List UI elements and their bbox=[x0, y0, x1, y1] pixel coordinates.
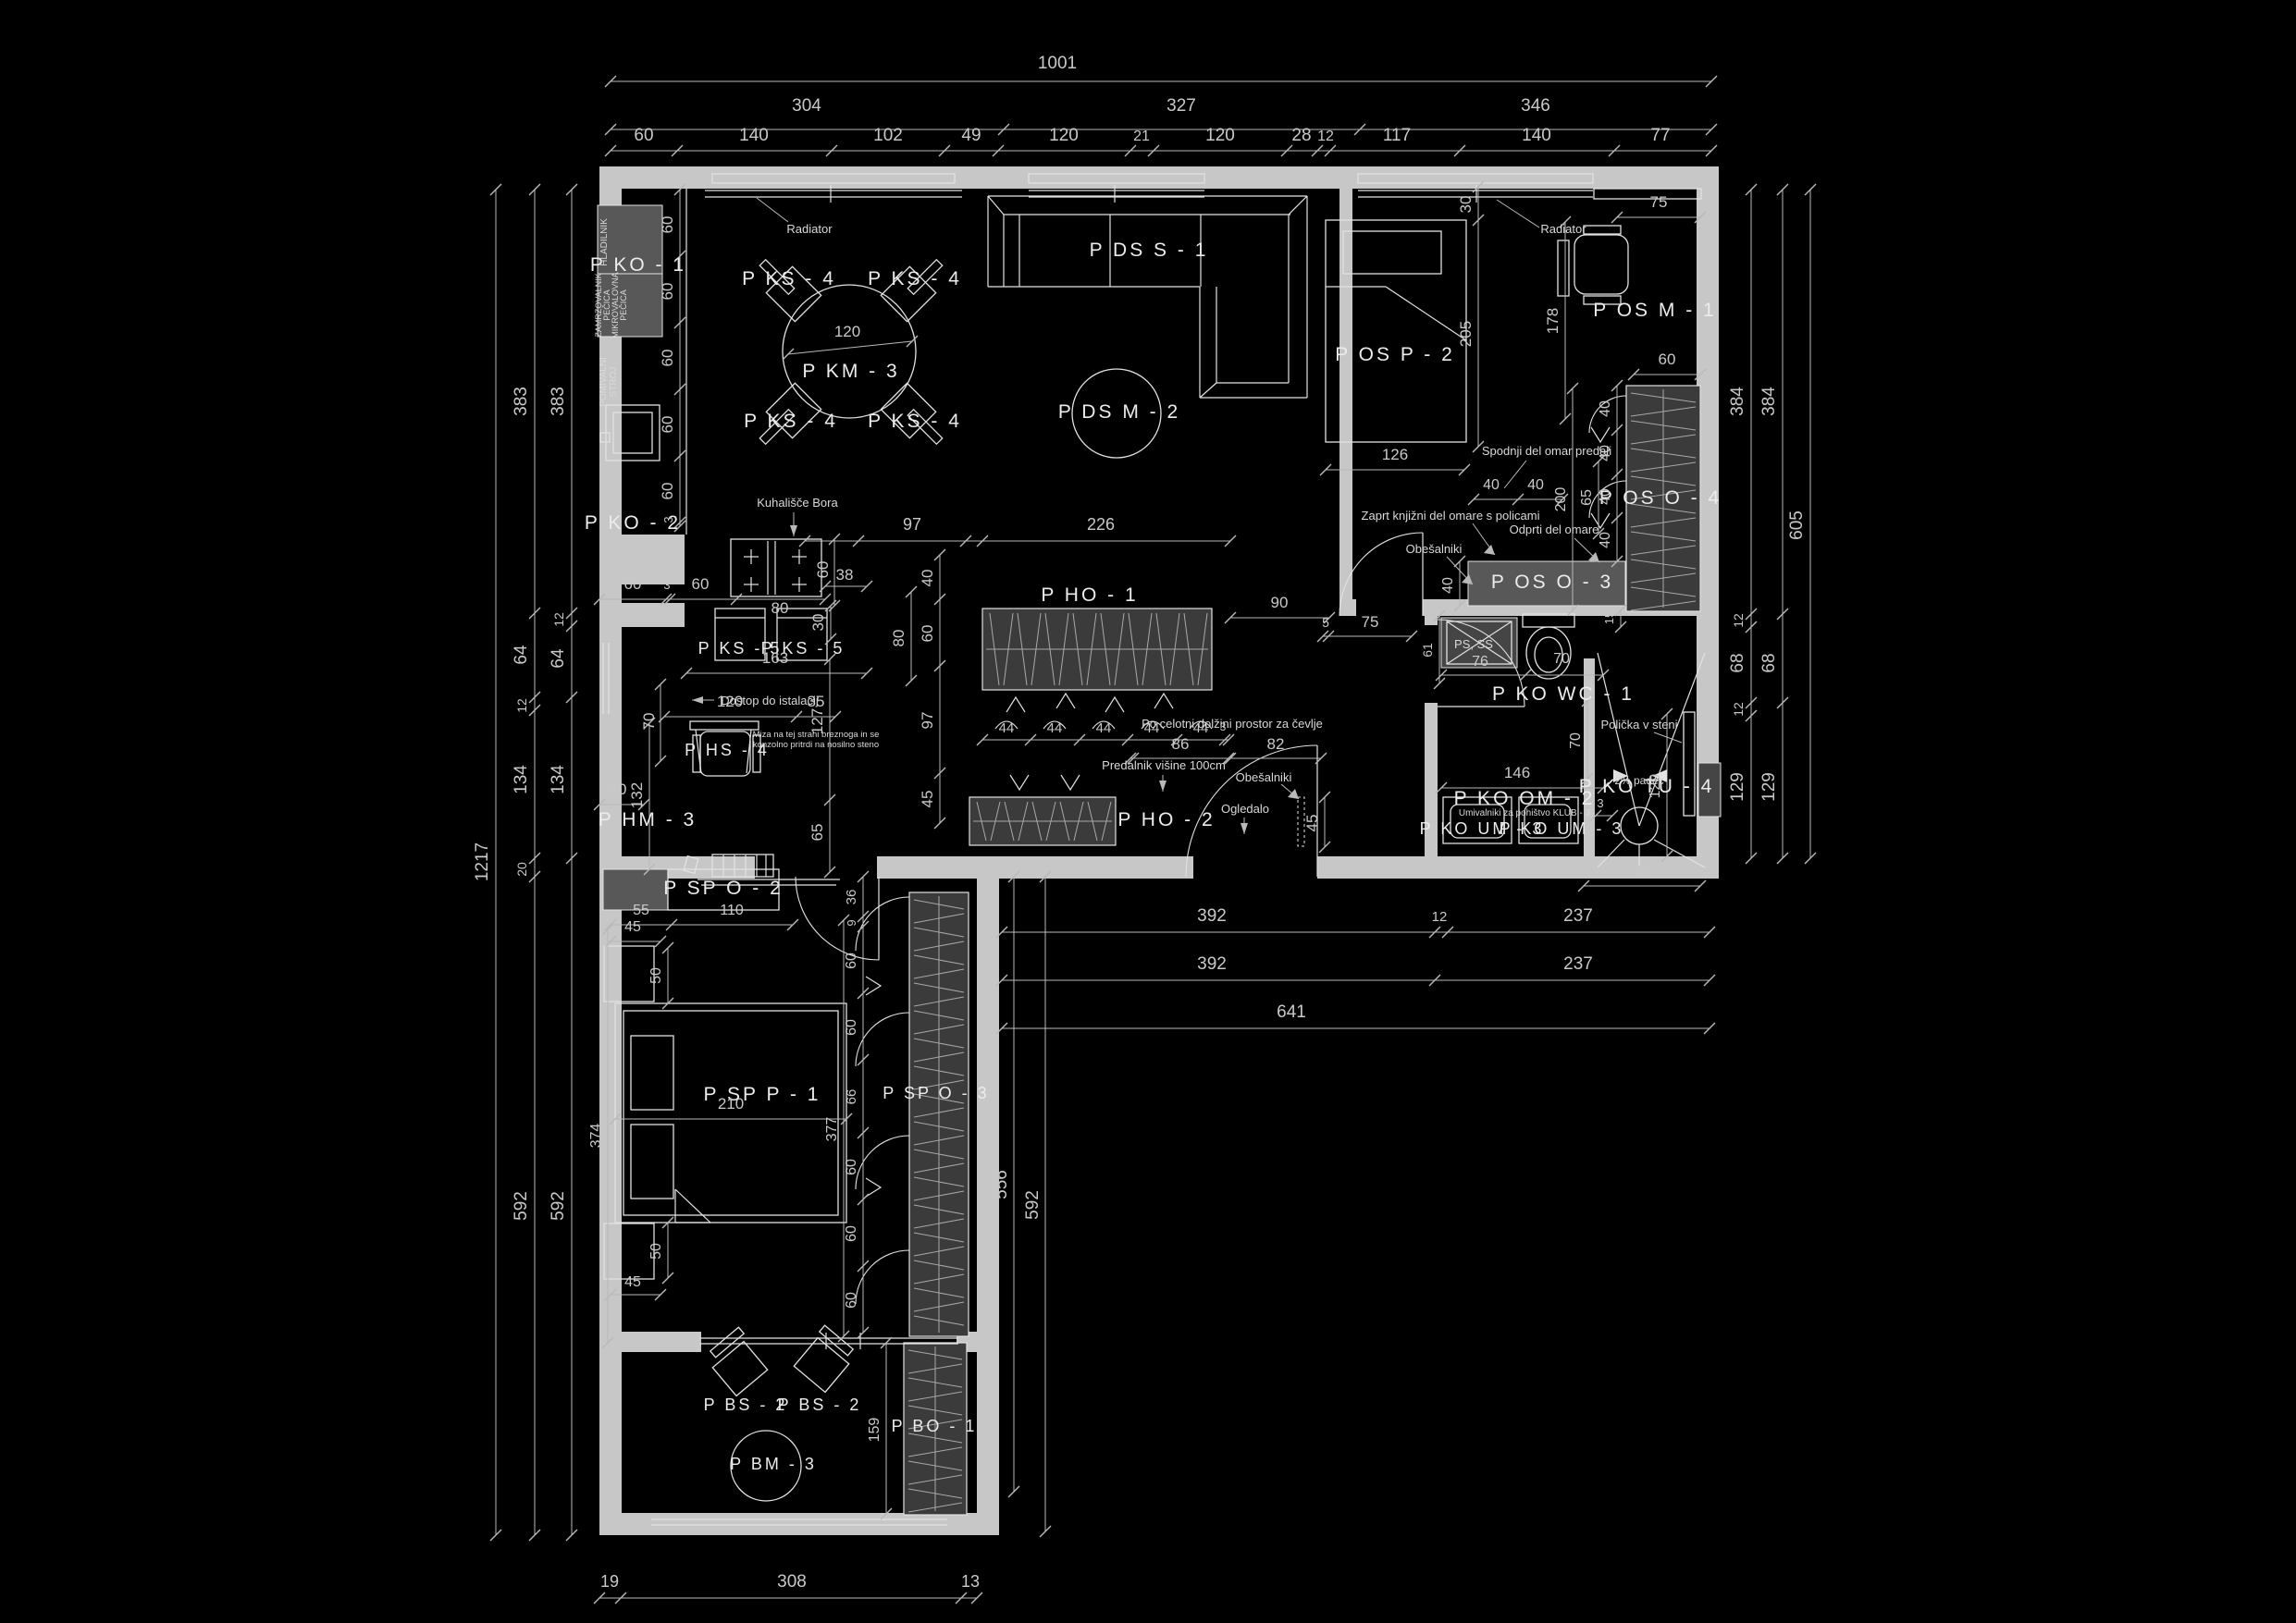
svg-text:140: 140 bbox=[1522, 126, 1551, 145]
svg-text:44: 44 bbox=[1096, 720, 1112, 736]
svg-text:163: 163 bbox=[762, 649, 788, 667]
svg-text:Spodnji del omar predali: Spodnji del omar predali bbox=[1482, 444, 1611, 458]
svg-text:88: 88 bbox=[1636, 865, 1651, 880]
svg-text:641: 641 bbox=[1277, 1002, 1306, 1022]
walls-layer bbox=[599, 166, 1719, 1535]
svg-text:60: 60 bbox=[844, 1225, 859, 1242]
svg-text:346: 346 bbox=[1521, 96, 1550, 116]
svg-text:70: 70 bbox=[1568, 732, 1584, 749]
svg-text:134: 134 bbox=[512, 765, 531, 794]
svg-text:50: 50 bbox=[648, 1243, 664, 1260]
svg-text:129: 129 bbox=[1759, 772, 1779, 802]
svg-text:45: 45 bbox=[919, 791, 936, 808]
svg-text:P KS - 4: P KS - 4 bbox=[742, 268, 836, 289]
svg-text:374: 374 bbox=[588, 1124, 604, 1149]
svg-text:392: 392 bbox=[1197, 954, 1227, 974]
svg-text:304: 304 bbox=[792, 96, 821, 116]
svg-text:377: 377 bbox=[824, 1117, 840, 1142]
svg-text:15: 15 bbox=[1602, 611, 1616, 624]
svg-text:P BO - 1: P BO - 1 bbox=[892, 1417, 978, 1435]
svg-text:384: 384 bbox=[1728, 387, 1747, 416]
svg-text:117: 117 bbox=[1383, 126, 1411, 145]
svg-text:Dostop do istalacij: Dostop do istalacij bbox=[721, 694, 819, 707]
svg-text:200: 200 bbox=[1553, 487, 1569, 512]
svg-text:Radiator: Radiator bbox=[1540, 222, 1586, 236]
svg-text:P BS - 2: P BS - 2 bbox=[778, 1396, 862, 1414]
svg-text:60: 60 bbox=[659, 483, 676, 500]
svg-text:HLADILNIK: HLADILNIK bbox=[599, 218, 610, 266]
svg-text:110: 110 bbox=[720, 903, 744, 918]
svg-text:1001: 1001 bbox=[1038, 54, 1077, 73]
svg-text:12: 12 bbox=[1317, 129, 1334, 144]
svg-text:60: 60 bbox=[844, 1019, 859, 1036]
furniture-layer bbox=[600, 174, 1705, 1525]
svg-text:3: 3 bbox=[661, 516, 675, 523]
svg-text:Miza na tej strani breznoga in: Miza na tej strani breznoga in se bbox=[753, 730, 880, 740]
svg-text:140: 140 bbox=[739, 126, 769, 145]
svg-text:28: 28 bbox=[1291, 126, 1311, 145]
svg-text:P HO - 2: P HO - 2 bbox=[1117, 809, 1215, 830]
svg-text:Po celotni dolžini prostor za: Po celotni dolžini prostor za čevlje bbox=[1142, 717, 1323, 731]
svg-text:120: 120 bbox=[1205, 126, 1235, 145]
svg-text:40: 40 bbox=[1527, 477, 1544, 493]
svg-text:3: 3 bbox=[1597, 796, 1603, 810]
svg-text:P KS - 4: P KS - 4 bbox=[868, 411, 962, 432]
svg-text:75: 75 bbox=[1362, 613, 1379, 631]
svg-text:80: 80 bbox=[772, 599, 789, 617]
svg-text:P KO UM - 3: P KO UM - 3 bbox=[1500, 819, 1624, 838]
svg-text:159: 159 bbox=[867, 1418, 883, 1443]
svg-text:146: 146 bbox=[1504, 764, 1530, 781]
svg-text:P OS O - 3: P OS O - 3 bbox=[1491, 572, 1613, 593]
svg-text:12: 12 bbox=[1731, 613, 1746, 628]
svg-text:P SP O - 3: P SP O - 3 bbox=[883, 1084, 989, 1102]
svg-text:38: 38 bbox=[836, 566, 854, 584]
svg-text:66: 66 bbox=[844, 1089, 859, 1105]
svg-text:21: 21 bbox=[1133, 129, 1150, 144]
svg-text:Zaprt knjižni del omare s poli: Zaprt knjižni del omare s policami bbox=[1362, 509, 1540, 523]
svg-text:P KO WC - 1: P KO WC - 1 bbox=[1492, 683, 1635, 705]
svg-text:65: 65 bbox=[809, 824, 826, 842]
svg-text:60: 60 bbox=[659, 350, 676, 367]
svg-text:45: 45 bbox=[1303, 815, 1321, 832]
svg-text:40: 40 bbox=[919, 570, 936, 587]
svg-text:P SP O - 2: P SP O - 2 bbox=[663, 878, 784, 899]
svg-text:237: 237 bbox=[1563, 906, 1593, 926]
svg-text:75: 75 bbox=[1650, 193, 1668, 211]
svg-text:60: 60 bbox=[659, 416, 676, 434]
svg-text:205: 205 bbox=[1457, 321, 1475, 347]
svg-text:P HO - 1: P HO - 1 bbox=[1041, 584, 1138, 606]
svg-text:5: 5 bbox=[1322, 615, 1329, 630]
svg-text:126: 126 bbox=[1382, 446, 1408, 463]
annotation-labels-layer: RadiatorRadiatorKuhališče BoraDostop do … bbox=[594, 218, 1678, 818]
svg-text:76: 76 bbox=[1472, 654, 1488, 670]
svg-text:44: 44 bbox=[1047, 720, 1063, 736]
svg-text:STROJ: STROJ bbox=[609, 367, 619, 398]
svg-text:40: 40 bbox=[1598, 400, 1613, 417]
svg-text:Umivalniki za pohištvo KLUB -: Umivalniki za pohištvo KLUB - 3 bbox=[1459, 808, 1591, 818]
svg-text:102: 102 bbox=[873, 126, 903, 145]
svg-text:40: 40 bbox=[1440, 577, 1456, 594]
svg-text:45: 45 bbox=[624, 1274, 641, 1290]
svg-text:80: 80 bbox=[890, 630, 907, 647]
svg-text:65: 65 bbox=[1579, 489, 1595, 506]
svg-text:308: 308 bbox=[777, 1572, 807, 1592]
svg-text:40: 40 bbox=[1483, 477, 1500, 493]
svg-text:P HM - 3: P HM - 3 bbox=[599, 809, 697, 830]
svg-text:20: 20 bbox=[514, 862, 529, 877]
svg-text:Obešalniki: Obešalniki bbox=[1236, 770, 1292, 784]
svg-text:60: 60 bbox=[1659, 350, 1676, 368]
svg-text:86: 86 bbox=[1172, 735, 1190, 753]
svg-text:237: 237 bbox=[1563, 954, 1593, 974]
svg-text:60: 60 bbox=[659, 283, 676, 301]
svg-text:30: 30 bbox=[1457, 196, 1475, 214]
svg-text:70: 70 bbox=[640, 713, 658, 731]
svg-text:P KO OM - 2: P KO OM - 2 bbox=[1454, 788, 1596, 809]
svg-text:60: 60 bbox=[692, 575, 710, 593]
svg-text:60: 60 bbox=[844, 953, 859, 969]
svg-text:13: 13 bbox=[961, 1572, 980, 1591]
svg-text:12: 12 bbox=[514, 698, 529, 713]
svg-text:70: 70 bbox=[1553, 651, 1570, 667]
svg-text:383: 383 bbox=[512, 387, 531, 416]
svg-text:68: 68 bbox=[1728, 653, 1747, 672]
svg-text:132: 132 bbox=[628, 782, 646, 808]
svg-text:Odprti del omare: Odprti del omare bbox=[1510, 523, 1599, 536]
svg-text:P KM - 3: P KM - 3 bbox=[802, 361, 899, 382]
svg-text:P DS S - 1: P DS S - 1 bbox=[1090, 240, 1209, 261]
floor-plan-canvas: P KO - 1P KO - 2P KM - 3P KS - 4P KS - 4… bbox=[0, 0, 2296, 1623]
svg-text:44: 44 bbox=[999, 720, 1015, 736]
svg-text:55: 55 bbox=[633, 903, 649, 918]
svg-text:210: 210 bbox=[718, 1095, 744, 1113]
svg-text:P BM - 3: P BM - 3 bbox=[730, 1455, 817, 1473]
svg-text:392: 392 bbox=[1197, 906, 1227, 926]
svg-text:PEČICA: PEČICA bbox=[619, 289, 628, 321]
svg-text:82: 82 bbox=[1267, 735, 1285, 753]
svg-text:134: 134 bbox=[549, 765, 568, 794]
svg-text:Polička v steni: Polička v steni bbox=[1600, 718, 1677, 732]
svg-text:129: 129 bbox=[1728, 772, 1747, 802]
svg-text:60: 60 bbox=[634, 126, 653, 145]
svg-text:178: 178 bbox=[1544, 308, 1562, 334]
svg-text:60: 60 bbox=[844, 1159, 859, 1175]
svg-text:3: 3 bbox=[663, 578, 670, 592]
svg-text:12: 12 bbox=[1731, 702, 1746, 717]
svg-text:Predalnik višine 100cm: Predalnik višine 100cm bbox=[1102, 758, 1226, 772]
svg-text:P DS M - 2: P DS M - 2 bbox=[1058, 401, 1180, 423]
svg-text:60: 60 bbox=[814, 561, 832, 579]
svg-text:P OS P - 2: P OS P - 2 bbox=[1335, 344, 1455, 365]
svg-text:592: 592 bbox=[549, 1191, 568, 1221]
svg-text:49: 49 bbox=[961, 126, 981, 145]
svg-text:Radiator: Radiator bbox=[786, 222, 833, 236]
svg-text:45: 45 bbox=[624, 919, 641, 935]
svg-text:P OS M - 1: P OS M - 1 bbox=[1593, 300, 1716, 321]
svg-text:226: 226 bbox=[1087, 515, 1115, 534]
svg-text:P KS - 4: P KS - 4 bbox=[744, 411, 838, 432]
svg-text:327: 327 bbox=[1167, 96, 1196, 116]
svg-text:384: 384 bbox=[1759, 387, 1779, 416]
svg-text:64: 64 bbox=[549, 648, 568, 669]
svg-text:Kuhališče Bora: Kuhališče Bora bbox=[757, 496, 838, 510]
svg-text:556: 556 bbox=[992, 1170, 1011, 1199]
svg-text:9: 9 bbox=[845, 919, 858, 926]
wardrobe-hatch-layer bbox=[904, 386, 1700, 1515]
svg-text:P BS - 2: P BS - 2 bbox=[704, 1396, 788, 1414]
svg-text:60: 60 bbox=[919, 625, 936, 643]
svg-text:P KS - 4: P KS - 4 bbox=[868, 268, 962, 289]
svg-text:60: 60 bbox=[659, 216, 676, 234]
svg-text:40: 40 bbox=[610, 781, 627, 798]
svg-text:383: 383 bbox=[549, 387, 568, 416]
svg-text:60: 60 bbox=[624, 575, 642, 593]
svg-text:120: 120 bbox=[1049, 126, 1079, 145]
svg-text:POMIVALNI: POMIVALNI bbox=[599, 357, 609, 407]
svg-text:konzolno pritrdi na nosilno st: konzolno pritrdi na nosilno steno bbox=[753, 740, 879, 750]
svg-text:97: 97 bbox=[903, 515, 921, 534]
svg-text:Ogledalo: Ogledalo bbox=[1221, 802, 1269, 816]
svg-text:12: 12 bbox=[1432, 909, 1448, 925]
svg-text:64: 64 bbox=[512, 645, 531, 665]
svg-text:PS, SS: PS, SS bbox=[1454, 637, 1493, 651]
svg-text:40: 40 bbox=[1598, 532, 1613, 548]
svg-text:605: 605 bbox=[1787, 510, 1807, 540]
svg-text:30: 30 bbox=[809, 614, 827, 632]
svg-text:61: 61 bbox=[1420, 643, 1435, 658]
svg-text:592: 592 bbox=[1023, 1190, 1043, 1220]
svg-text:68: 68 bbox=[1759, 653, 1779, 672]
svg-text:50: 50 bbox=[648, 967, 664, 984]
svg-text:60: 60 bbox=[844, 1292, 859, 1309]
svg-text:12: 12 bbox=[551, 612, 566, 627]
svg-text:36: 36 bbox=[844, 890, 859, 905]
svg-text:2% padec: 2% padec bbox=[1614, 774, 1663, 787]
svg-text:77: 77 bbox=[1650, 126, 1670, 145]
svg-text:19: 19 bbox=[600, 1572, 619, 1591]
svg-text:90: 90 bbox=[1271, 594, 1289, 611]
svg-text:592: 592 bbox=[512, 1191, 531, 1221]
svg-text:1217: 1217 bbox=[473, 842, 492, 881]
svg-text:P OS O - 4: P OS O - 4 bbox=[1599, 487, 1722, 509]
svg-text:40: 40 bbox=[1598, 488, 1613, 505]
floor-plan: P KO - 1P KO - 2P KM - 3P KS - 4P KS - 4… bbox=[0, 0, 2296, 1623]
svg-text:97: 97 bbox=[919, 712, 936, 730]
svg-text:Obešalniki: Obešalniki bbox=[1406, 542, 1463, 556]
svg-text:120: 120 bbox=[834, 323, 860, 340]
